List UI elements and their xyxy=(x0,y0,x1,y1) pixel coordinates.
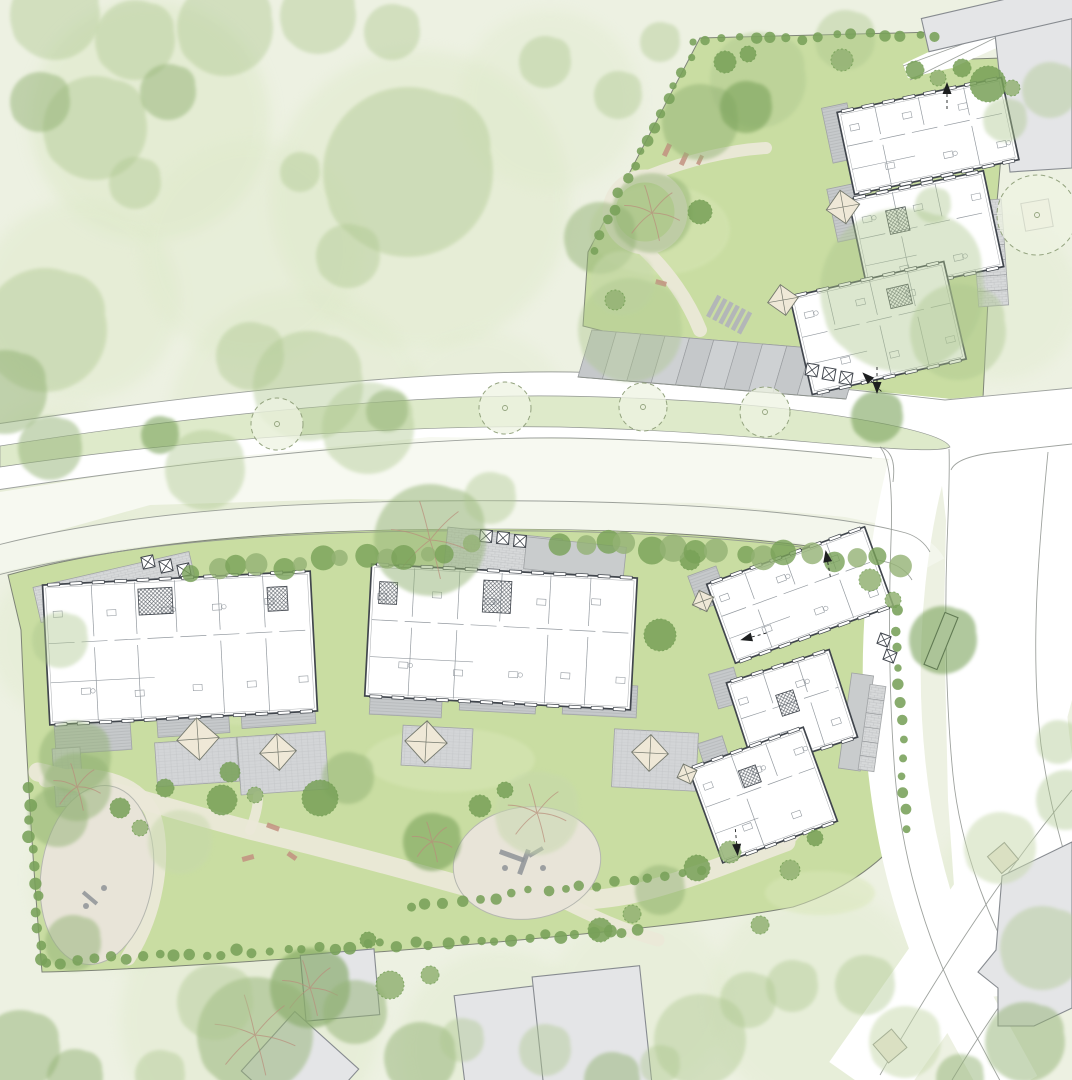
tree xyxy=(148,810,212,874)
tree xyxy=(18,416,82,480)
window xyxy=(189,716,201,720)
window xyxy=(392,696,404,700)
window xyxy=(509,570,521,574)
hedge-shrub xyxy=(407,903,416,912)
hedge-shrub xyxy=(138,951,148,961)
hedge-shrub xyxy=(669,82,676,89)
window xyxy=(122,719,134,723)
hedge-shrub xyxy=(660,871,670,881)
tree xyxy=(983,98,1027,142)
tree-crown xyxy=(595,88,621,114)
shrub xyxy=(273,558,295,580)
tree xyxy=(364,4,420,60)
hedge-shrub xyxy=(314,942,324,952)
refuse-box xyxy=(805,363,819,377)
tree xyxy=(915,187,951,223)
window xyxy=(115,579,127,583)
tree-crown xyxy=(721,992,752,1023)
hedge-shrub xyxy=(376,938,384,946)
tree-crown xyxy=(33,632,64,663)
planted-tree xyxy=(220,762,240,782)
tree xyxy=(109,157,161,209)
window xyxy=(480,701,492,705)
planted-tree xyxy=(302,780,338,816)
tree-crown xyxy=(110,175,139,204)
hedge-shrub xyxy=(637,147,645,155)
stair-core xyxy=(379,582,398,605)
hedge-shrub xyxy=(894,31,905,42)
tree-crown xyxy=(365,24,396,55)
hedge-shrub xyxy=(895,697,906,708)
window xyxy=(414,697,426,701)
tree-crown xyxy=(520,54,549,83)
hedge-shrub xyxy=(609,876,620,887)
hedge-shrub xyxy=(632,924,644,936)
hedge-shrub xyxy=(917,31,925,39)
tree xyxy=(140,64,196,120)
lawn-patch xyxy=(765,871,875,915)
stair-core xyxy=(482,580,512,613)
hedge-shrub xyxy=(612,188,623,199)
tree-crown xyxy=(179,991,221,1033)
shrub xyxy=(704,539,728,563)
tree-crown xyxy=(20,438,55,473)
tree-crown xyxy=(824,265,914,355)
tree-crown xyxy=(465,490,494,519)
hedge-shrub xyxy=(892,643,901,652)
refuse-box xyxy=(159,559,173,573)
tree-crown xyxy=(179,14,232,67)
planted-tree xyxy=(780,860,800,880)
window xyxy=(144,718,156,722)
tree xyxy=(964,812,1036,884)
tree-crown xyxy=(367,405,390,428)
hedge-shrub xyxy=(31,907,41,917)
tree-crown xyxy=(721,99,750,128)
hedge-shrub xyxy=(574,881,584,891)
shrub xyxy=(355,544,379,568)
shrub xyxy=(889,555,912,578)
window xyxy=(532,571,544,575)
tree xyxy=(578,278,682,382)
window xyxy=(436,698,448,702)
hedge-shrub xyxy=(167,949,179,961)
hedge-shrub xyxy=(688,54,695,61)
hedge-shrub xyxy=(330,944,341,955)
window xyxy=(591,706,603,710)
hedge-shrub xyxy=(419,898,430,909)
tree-crown xyxy=(1038,791,1071,824)
tree xyxy=(720,81,772,133)
window xyxy=(233,713,245,717)
hedge-shrub xyxy=(797,35,807,45)
hedge-shrub xyxy=(72,955,83,966)
hedge-shrub xyxy=(29,845,38,854)
hedge-shrub xyxy=(900,736,908,744)
window xyxy=(487,569,499,573)
window xyxy=(70,582,82,586)
hedge-shrub xyxy=(437,898,448,909)
tree-crown xyxy=(324,414,375,465)
hedge-shrub xyxy=(643,873,652,882)
site-plan-canvas xyxy=(0,0,1072,1080)
window xyxy=(620,576,632,580)
hedge-shrub xyxy=(55,958,66,969)
tree-crown xyxy=(767,978,796,1007)
tree xyxy=(280,152,320,192)
tree-crown xyxy=(150,832,185,867)
hedge-shrub xyxy=(813,32,823,42)
tree-crown xyxy=(142,429,163,450)
hedge-shrub xyxy=(892,678,903,689)
proposed-tree xyxy=(479,382,531,434)
hedge-shrub xyxy=(689,38,696,45)
refuse-box xyxy=(141,555,155,569)
shrub xyxy=(660,535,687,562)
tree-crown xyxy=(987,1030,1031,1074)
hedge-shrub xyxy=(23,782,34,793)
hedge-shrub xyxy=(591,247,599,255)
tree xyxy=(440,1018,484,1062)
window xyxy=(525,703,537,707)
hedge-shrub xyxy=(901,804,912,815)
hedge-shrub xyxy=(554,931,567,944)
tree-crown xyxy=(141,84,172,115)
hedge-shrub xyxy=(526,934,535,943)
planted-tree xyxy=(469,795,491,817)
hedge-shrub xyxy=(411,936,422,947)
shrub xyxy=(770,540,796,566)
window xyxy=(547,704,559,708)
tree xyxy=(635,865,685,915)
shrub xyxy=(435,545,454,564)
hedge-shrub xyxy=(266,948,274,956)
hedge-shrub xyxy=(443,937,455,949)
refuse-box xyxy=(513,534,526,547)
hedge-shrub xyxy=(610,205,621,216)
tree-crown xyxy=(966,837,1006,877)
hedge-shrub xyxy=(121,954,132,965)
hedge-shrub xyxy=(588,927,600,939)
tree xyxy=(519,1024,571,1076)
hedge-shrub xyxy=(616,928,626,938)
tree-crown xyxy=(871,1031,911,1071)
planted-tree xyxy=(247,787,263,803)
hedge-shrub xyxy=(700,36,709,45)
hedge-shrub xyxy=(664,93,675,104)
tree-crown xyxy=(325,1002,360,1037)
planted-tree xyxy=(906,61,924,79)
hedge-shrub xyxy=(285,945,293,953)
hedge-shrub xyxy=(879,30,890,41)
hedge-shrub xyxy=(24,815,33,824)
hedge-shrub xyxy=(106,951,116,961)
planted-tree xyxy=(623,905,641,923)
hedge-shrub xyxy=(623,173,633,183)
tree-crown xyxy=(282,5,324,47)
tree xyxy=(141,416,179,454)
hedge-shrub xyxy=(781,33,790,42)
window xyxy=(503,702,515,706)
planted-tree xyxy=(497,782,513,798)
planted-tree xyxy=(1004,80,1020,96)
planted-tree xyxy=(970,66,1006,102)
window xyxy=(166,717,178,721)
planted-tree xyxy=(132,820,148,836)
hedge-shrub xyxy=(642,135,654,147)
hedge-shrub xyxy=(833,30,841,38)
hedge-shrub xyxy=(764,32,775,43)
hedge-shrub xyxy=(343,942,356,955)
hedge-shrub xyxy=(32,923,42,933)
refuse-box xyxy=(496,531,509,544)
tree-crown xyxy=(97,28,141,72)
tree-crown xyxy=(12,93,45,126)
planted-tree xyxy=(859,569,881,591)
window xyxy=(370,695,382,699)
tree xyxy=(640,22,680,62)
tree-crown xyxy=(218,346,255,383)
hedge-shrub xyxy=(24,799,37,812)
hedge-shrub xyxy=(570,930,579,939)
tree-crown xyxy=(497,800,543,846)
hedge-shrub xyxy=(892,605,903,616)
hedge-shrub xyxy=(477,937,485,945)
hedge-shrub xyxy=(604,925,617,938)
tree-crown xyxy=(636,883,664,911)
hedge-shrub xyxy=(297,945,305,953)
window xyxy=(613,707,625,711)
tree-crown xyxy=(984,113,1008,137)
window xyxy=(137,578,149,582)
hedge-shrub xyxy=(676,68,686,78)
hedge-shrub xyxy=(866,28,875,37)
hedge-shrub xyxy=(491,893,502,904)
tree-crown xyxy=(318,246,353,281)
tree xyxy=(766,960,818,1012)
window xyxy=(458,699,470,703)
planted-tree xyxy=(684,855,710,881)
hedge-shrub xyxy=(391,941,402,952)
tree xyxy=(985,1002,1065,1080)
hedge-shrub xyxy=(476,895,485,904)
planted-tree xyxy=(421,966,439,984)
hedge-shrub xyxy=(562,885,570,893)
hedge-shrub xyxy=(751,32,762,43)
tree-crown xyxy=(664,111,706,153)
hedge-shrub xyxy=(592,882,601,891)
hedge-shrub xyxy=(679,869,687,877)
planted-tree xyxy=(740,46,756,62)
hedge-shrub xyxy=(524,886,532,894)
window xyxy=(569,705,581,709)
tree-crown xyxy=(1037,735,1061,759)
hedge-shrub xyxy=(460,936,469,945)
shrub xyxy=(549,533,571,555)
window xyxy=(100,720,112,724)
hedge-shrub xyxy=(891,627,901,637)
refuse-box xyxy=(839,371,853,385)
hedge-shrub xyxy=(894,664,901,671)
window xyxy=(576,573,588,577)
tree-crown xyxy=(916,200,936,220)
hedge-shrub xyxy=(899,754,907,762)
hedge-shrub xyxy=(423,941,432,950)
tree xyxy=(594,71,642,119)
tree xyxy=(835,955,895,1015)
planted-tree xyxy=(156,779,174,797)
hedge-shrub xyxy=(156,950,165,959)
tree-crown xyxy=(641,36,663,58)
stair-core xyxy=(267,586,288,611)
window xyxy=(256,712,268,716)
hedge-shrub xyxy=(505,935,517,947)
planted-tree xyxy=(605,290,625,310)
tree-crown xyxy=(12,2,62,52)
tree xyxy=(909,606,977,674)
planted-tree xyxy=(207,785,237,815)
tree-crown xyxy=(1023,82,1054,113)
tree xyxy=(869,1006,941,1078)
shrub xyxy=(293,557,307,571)
shrub xyxy=(613,532,635,554)
tree xyxy=(519,36,571,88)
play-equipment-post xyxy=(502,865,508,871)
shrub xyxy=(577,535,597,555)
planted-tree xyxy=(807,830,823,846)
shrub xyxy=(868,547,886,565)
planted-tree xyxy=(376,971,404,999)
tree-crown xyxy=(852,409,881,438)
hedge-shrub xyxy=(897,715,907,725)
hedge-shrub xyxy=(29,861,39,871)
tree xyxy=(316,224,380,288)
hedge-shrub xyxy=(490,937,498,945)
hedge-shrub xyxy=(717,34,725,42)
shrub xyxy=(331,550,347,566)
hedge-shrub xyxy=(630,876,639,885)
shrub xyxy=(182,565,199,582)
tree xyxy=(851,391,903,443)
planted-tree xyxy=(930,70,946,86)
planted-tree xyxy=(688,200,712,224)
proposed-tree xyxy=(619,383,667,431)
tree-crown xyxy=(912,318,965,371)
tree xyxy=(366,390,408,432)
hedge-shrub xyxy=(845,28,856,39)
proposed-tree xyxy=(251,398,303,450)
hedge-shrub xyxy=(603,215,613,225)
planted-tree xyxy=(831,49,853,71)
play-equipment-post xyxy=(540,865,546,871)
hedge-shrub xyxy=(22,830,35,843)
window xyxy=(554,572,566,576)
shrub xyxy=(245,553,267,575)
hedge-shrub xyxy=(35,953,47,965)
hedge-shrub xyxy=(230,944,242,956)
planted-tree xyxy=(644,619,676,651)
tree xyxy=(464,472,516,524)
shrub xyxy=(421,547,436,562)
window xyxy=(159,577,171,581)
shrub xyxy=(225,555,246,576)
tree xyxy=(10,72,70,132)
hedge-shrub xyxy=(929,32,939,42)
tree-crown xyxy=(281,166,303,188)
tree-crown xyxy=(441,1033,465,1057)
refuse-box xyxy=(822,367,836,381)
hedge-shrub xyxy=(203,952,211,960)
planted-tree xyxy=(953,59,971,77)
hedge-shrub xyxy=(544,886,555,897)
shrub xyxy=(801,542,823,564)
hedge-shrub xyxy=(216,951,225,960)
play-equipment-post xyxy=(83,903,89,909)
hedge-shrub xyxy=(457,895,468,906)
hedge-shrub xyxy=(697,866,706,875)
hedge-shrub xyxy=(897,787,908,798)
tree-crown xyxy=(520,1042,549,1071)
shrub xyxy=(848,548,867,567)
planted-tree xyxy=(751,916,769,934)
tree xyxy=(910,284,1006,380)
shrub xyxy=(391,545,416,570)
proposed-tree xyxy=(740,387,790,437)
window xyxy=(48,583,60,587)
play-equipment-post xyxy=(101,885,107,891)
hedge-shrub xyxy=(364,939,373,948)
tree-crown xyxy=(837,976,870,1009)
tree-crown xyxy=(614,201,658,245)
hedge-shrub xyxy=(507,889,516,898)
hedge-shrub xyxy=(656,109,665,118)
hedge-shrub xyxy=(89,953,99,963)
hedge-shrub xyxy=(36,941,46,951)
tree xyxy=(32,612,88,668)
hedge-shrub xyxy=(736,33,743,40)
hedge-shrub xyxy=(246,948,256,958)
hedge-shrub xyxy=(29,878,41,890)
tree-crown xyxy=(911,630,948,667)
tree xyxy=(177,964,253,1040)
window xyxy=(92,580,104,584)
window xyxy=(300,710,312,714)
shrub xyxy=(463,535,481,553)
hedge-shrub xyxy=(183,949,194,960)
hedge-shrub xyxy=(631,162,640,171)
window xyxy=(211,714,223,718)
planted-tree xyxy=(714,51,736,73)
hedge-shrub xyxy=(594,230,604,240)
window xyxy=(278,711,290,715)
tree-crown xyxy=(656,1026,707,1077)
site-plan-drawing xyxy=(0,0,1072,1080)
tree-crown xyxy=(1002,935,1048,981)
planted-tree xyxy=(110,798,130,818)
shrub xyxy=(684,540,708,564)
hedge-shrub xyxy=(649,122,660,133)
tree-crown xyxy=(581,314,638,371)
hedge-shrub xyxy=(33,891,43,901)
hedge-shrub xyxy=(898,772,906,780)
window xyxy=(598,574,610,578)
hedge-shrub xyxy=(903,825,911,833)
stair-core xyxy=(138,587,173,615)
hedge-shrub xyxy=(540,929,550,939)
tree-crown xyxy=(167,458,211,502)
